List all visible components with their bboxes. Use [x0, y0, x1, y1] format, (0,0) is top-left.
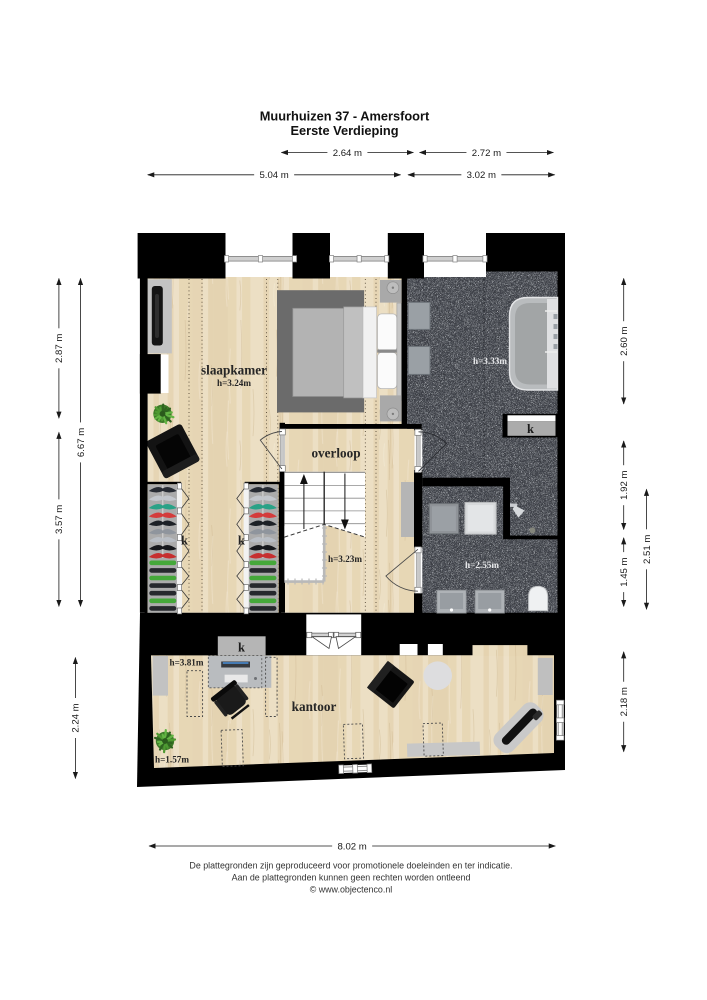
- svg-text:2.72 m: 2.72 m: [472, 148, 501, 159]
- svg-text:2.24 m: 2.24 m: [71, 703, 82, 732]
- svg-text:1.45 m: 1.45 m: [619, 557, 630, 586]
- svg-text:6.67 m: 6.67 m: [76, 428, 87, 457]
- svg-text:© www.objectenco.nl: © www.objectenco.nl: [310, 885, 393, 895]
- svg-text:k: k: [238, 641, 245, 655]
- svg-text:Muurhuizen 37 - Amersfoort: Muurhuizen 37 - Amersfoort: [260, 109, 430, 124]
- svg-text:Aan de plattegronden kunnen ge: Aan de plattegronden kunnen geen rechten…: [232, 873, 471, 883]
- svg-text:k: k: [181, 534, 188, 548]
- svg-text:k: k: [527, 422, 534, 436]
- svg-text:h=2.55m: h=2.55m: [465, 560, 499, 570]
- svg-text:1.92 m: 1.92 m: [619, 471, 630, 500]
- svg-text:h=3.24m: h=3.24m: [217, 378, 251, 388]
- svg-text:5.04 m: 5.04 m: [259, 170, 288, 181]
- svg-text:2.18 m: 2.18 m: [619, 687, 630, 716]
- svg-text:3.57 m: 3.57 m: [54, 505, 65, 534]
- svg-text:2.60 m: 2.60 m: [619, 327, 630, 356]
- svg-text:2.51 m: 2.51 m: [642, 535, 653, 564]
- svg-text:k: k: [238, 534, 245, 548]
- svg-text:h=1.57m: h=1.57m: [155, 755, 189, 765]
- svg-text:overloop: overloop: [311, 446, 360, 461]
- svg-text:slaapkamer: slaapkamer: [201, 363, 267, 378]
- svg-text:kantoor: kantoor: [292, 699, 337, 714]
- svg-text:3.02 m: 3.02 m: [467, 170, 496, 181]
- svg-text:h=3.81m: h=3.81m: [169, 658, 203, 668]
- svg-text:8.02 m: 8.02 m: [337, 841, 366, 852]
- svg-text:2.87 m: 2.87 m: [54, 334, 65, 363]
- svg-text:h=3.33m: h=3.33m: [473, 356, 507, 366]
- svg-text:h=3.23m: h=3.23m: [328, 554, 362, 564]
- svg-text:Eerste Verdieping: Eerste Verdieping: [290, 123, 398, 138]
- svg-text:2.64 m: 2.64 m: [333, 148, 362, 159]
- svg-text:De plattegronden zijn geproduc: De plattegronden zijn geproduceerd voor …: [189, 861, 512, 871]
